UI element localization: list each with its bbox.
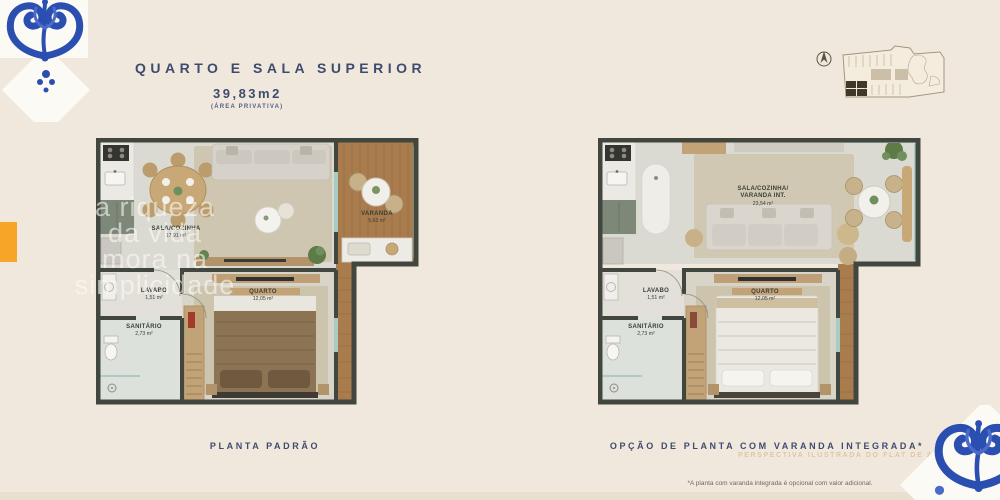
azulejo-tile-top-left [0, 0, 96, 122]
kitchen-sink [105, 172, 125, 185]
kitchen-island [642, 164, 670, 234]
walkway [838, 264, 856, 402]
wall-shelf [734, 142, 844, 152]
sideboard [682, 142, 726, 154]
lavabo-sink [102, 274, 116, 300]
label-quarto: QUARTO [751, 289, 779, 295]
fridge [101, 238, 121, 264]
north-arrow-icon [817, 51, 831, 66]
bedroom-tv-panel [212, 274, 320, 283]
label-quarto: QUARTO [249, 289, 277, 295]
label-quarto-area: 12,05 m² [253, 296, 274, 302]
private-area-value: 39,83m2 [213, 86, 282, 101]
label-sanitario: SANITÁRIO [628, 323, 664, 330]
sofa [706, 204, 832, 250]
page: QUARTO E SALA SUPERIOR 39,83m2 (ÁREA PRI… [0, 0, 1000, 500]
floorplan-integrated: SALA/COZINHA/ VARANDA INT. 23,54 m² QUAR… [598, 138, 936, 410]
fridge [603, 238, 623, 264]
footnote: *A planta com varanda integrada é opcion… [640, 480, 920, 487]
plant [308, 246, 326, 264]
label-lavabo-area: 1,51 m² [145, 295, 163, 301]
caption-planta-padrao: PLANTA PADRÃO [96, 441, 434, 451]
kitchen-sink [607, 172, 627, 185]
wardrobe [184, 306, 204, 400]
sofa [212, 144, 330, 180]
label-quarto-area: 12,05 m² [755, 296, 776, 302]
nightstand [206, 384, 217, 395]
sliding-door-glass [334, 172, 338, 232]
private-area-note: (ÁREA PRIVATIVA) [211, 104, 283, 110]
site-plan [813, 42, 953, 106]
label-varanda-area: 5,63 m² [368, 218, 386, 224]
bedroom-tv-panel [714, 274, 822, 283]
label-sala-area: 23,54 m² [753, 201, 774, 207]
wardrobe [686, 306, 706, 400]
side-basket [685, 229, 703, 247]
label-sanitario: SANITÁRIO [126, 323, 162, 330]
varanda-counter [342, 238, 412, 262]
label-lavabo: LAVABO [643, 288, 669, 294]
label-sala-2: VARANDA INT. [740, 193, 785, 199]
floorplan-standard: SALA/COZINHA 17,91 m² VARANDA 5,63 m² QU… [96, 138, 434, 410]
bed [212, 296, 318, 398]
label-sanitario-area: 2,73 m² [135, 331, 153, 337]
label-sala: SALA/COZINHA [152, 226, 201, 232]
dining-table [143, 153, 214, 228]
azulejo-tile-bottom-right [900, 405, 1000, 500]
nightstand [820, 384, 831, 395]
label-sala-area: 17,91 m² [166, 233, 187, 239]
page-title: QUARTO E SALA SUPERIOR [135, 60, 426, 76]
bedroom-window [334, 318, 338, 352]
label-varanda: VARANDA [361, 211, 393, 217]
site-labels [871, 69, 908, 80]
label-lavabo: LAVABO [141, 288, 167, 294]
bed [714, 296, 820, 398]
lavabo-sink [604, 274, 618, 300]
bottom-edge-strip [0, 492, 1000, 500]
edge-accent-tab [0, 222, 17, 262]
bedroom-window [836, 318, 840, 352]
nightstand [708, 384, 719, 395]
label-sala: SALA/COZINHA/ [738, 186, 789, 192]
nightstand [318, 384, 329, 395]
caption-varanda-integrada: OPÇÃO DE PLANTA COM VARANDA INTEGRADA* [588, 441, 946, 451]
bench [902, 166, 912, 242]
label-lavabo-area: 1,51 m² [647, 295, 665, 301]
label-sanitario-area: 2,73 m² [637, 331, 655, 337]
toilet [104, 336, 118, 360]
toilet [606, 336, 620, 360]
walkway [336, 264, 354, 402]
